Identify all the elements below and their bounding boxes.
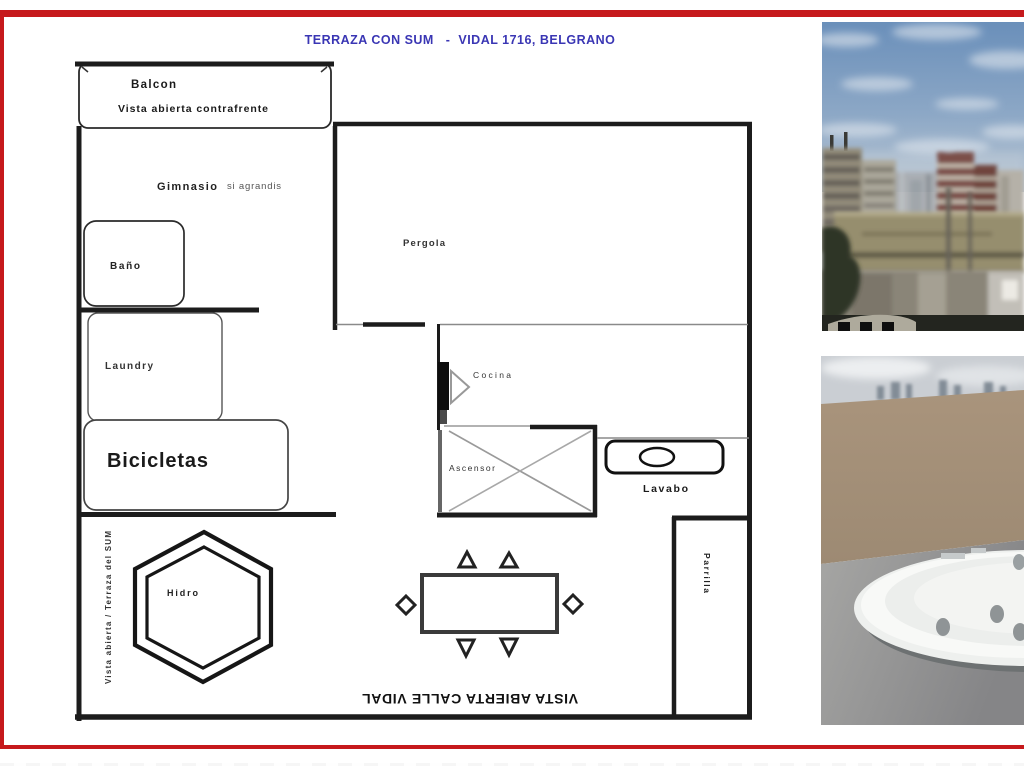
svg-text:Pergola: Pergola [403,238,446,249]
svg-text:Bicicletas: Bicicletas [107,450,208,472]
svg-text:Balcon: Balcon [131,79,176,91]
svg-text:Cocina: Cocina [473,370,511,380]
svg-text:VISTA ABIERTA CALLE VIDAL: VISTA ABIERTA CALLE VIDAL [362,691,578,707]
svg-text:Vista abierta / Terraza del SU: Vista abierta / Terraza del SUM [104,531,113,684]
svg-text:Lavabo: Lavabo [643,483,688,495]
svg-text:Gimnasio: Gimnasio [157,181,217,193]
svg-text:Hidro: Hidro [167,588,199,598]
svg-text:si agrandis: si agrandis [227,181,281,192]
svg-text:Vista abierta contrafrente: Vista abierta contrafrente [118,103,268,115]
svg-text:Ascensor: Ascensor [449,463,495,473]
svg-text:Parrilla: Parrilla [702,553,712,593]
